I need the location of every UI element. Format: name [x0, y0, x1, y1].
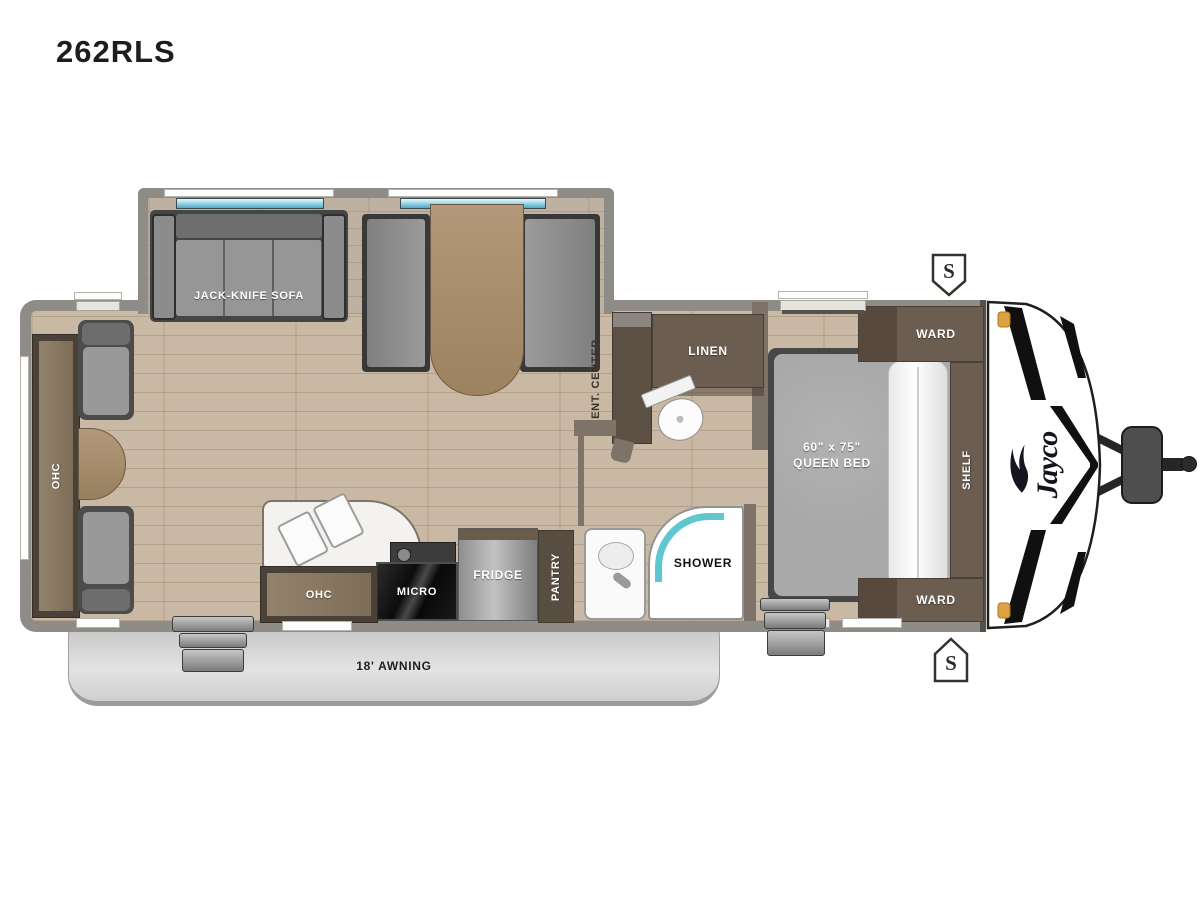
- wardrobe-bottom: WARD: [858, 578, 984, 622]
- main-step-3: [182, 649, 244, 672]
- vanity-sink: [598, 542, 634, 570]
- main-step-2: [179, 633, 247, 648]
- wall-bath-lower: [744, 504, 756, 621]
- vanity-faucet: [611, 571, 632, 590]
- linen-label: LINEN: [688, 344, 728, 358]
- wardrobe-bottom-end: [859, 579, 897, 621]
- microwave-label: MICRO: [397, 586, 437, 598]
- linen-cabinet: LINEN: [652, 314, 764, 388]
- pantry-label: PANTRY: [550, 552, 562, 600]
- shower-label: SHOWER: [674, 556, 732, 570]
- speaker-top-label: S: [943, 259, 955, 283]
- marker-light-bottom: [998, 603, 1010, 618]
- chair-bottom-back: [82, 589, 130, 611]
- chair-bottom: [78, 506, 134, 614]
- wall-hall-thin: [578, 436, 584, 526]
- wardrobe-bottom-label: WARD: [916, 593, 955, 607]
- chair-top-back: [82, 323, 130, 345]
- bedroom-step-1: [760, 598, 830, 611]
- speaker-bottom-label: S: [945, 651, 957, 675]
- dinette-bench-left: [362, 214, 430, 372]
- bed-type-label: QUEEN BED: [776, 456, 888, 472]
- shelf: SHELF: [950, 362, 984, 578]
- bedroom-step-3: [767, 630, 825, 656]
- dinette-bench-left-cushion: [367, 219, 425, 367]
- window-bottom-kitchen: [282, 621, 352, 631]
- window-bottom-bedroom: [842, 618, 902, 628]
- rear-ohc-label: OHC: [50, 463, 62, 490]
- speaker-bottom-icon: S: [932, 636, 970, 684]
- rear-ohc-cabinet: OHC: [32, 334, 80, 618]
- wardrobe-top: WARD: [858, 306, 984, 362]
- pillow-fold-line: [917, 367, 919, 585]
- sofa-backrest: [176, 214, 322, 238]
- bed-pillow: [888, 360, 948, 590]
- sofa-armrest-left: [152, 214, 176, 320]
- brand-logo: Jayco: [984, 395, 1088, 535]
- window-bottom-rear: [76, 618, 120, 628]
- chair-top-cushion: [83, 347, 129, 415]
- main-step-1: [172, 616, 254, 632]
- rear-ohc-labelwrap: OHC: [33, 335, 79, 617]
- bedroom-step-2: [764, 612, 826, 629]
- bed-label: 60" x 75" QUEEN BED: [776, 440, 888, 471]
- dinette-table: [430, 204, 524, 396]
- rear-window: [20, 356, 29, 560]
- ent-center-label: ENT. CENTER: [590, 339, 602, 419]
- brand-logo-text: Jayco: [1031, 432, 1065, 499]
- hitch-coupler: [1182, 457, 1197, 472]
- chair-top: [78, 320, 134, 420]
- kitchen-ohc-label: OHC: [306, 589, 333, 601]
- microwave: MICRO: [376, 562, 458, 621]
- wall-ent-return: [574, 420, 616, 436]
- slideout-window-frame-right: [388, 189, 558, 197]
- awning-label: 18' AWNING: [356, 659, 431, 673]
- pantry: PANTRY: [538, 530, 574, 623]
- chair-bottom-cushion: [83, 512, 129, 584]
- slideout-window-frame-left: [164, 189, 334, 197]
- stove-dial: [397, 548, 411, 562]
- bed-size-label: 60" x 75": [776, 440, 888, 456]
- slideout-window-left: [176, 198, 324, 209]
- sofa-armrest-right: [322, 214, 346, 320]
- page-title: 262RLS: [56, 34, 176, 70]
- marker-light-top: [998, 312, 1010, 327]
- shelf-label: SHELF: [961, 450, 973, 490]
- fridge: FRIDGE: [458, 528, 538, 621]
- sofa-seat: [176, 240, 322, 316]
- ent-center-cabinet: [612, 312, 652, 444]
- jack-knife-sofa: JACK-KNIFE SOFA: [150, 210, 348, 322]
- awning: 18' AWNING: [68, 630, 720, 706]
- propane-cover: [1122, 427, 1162, 503]
- fridge-label: FRIDGE: [473, 568, 523, 582]
- wardrobe-top-end: [859, 307, 897, 361]
- wardrobe-top-label: WARD: [916, 327, 955, 341]
- toilet-drain: [675, 415, 684, 424]
- kitchen-ohc-cabinet: OHC: [260, 566, 378, 623]
- window-bedroom-valance: [782, 310, 864, 314]
- bath-vanity: [584, 528, 646, 620]
- floorplan-page: 262RLS 18' AWNING JACK-KNIFE SOFA OHC: [0, 0, 1200, 900]
- window-bedroom-top-frame: [778, 291, 868, 299]
- sofa-label: JACK-KNIFE SOFA: [150, 290, 348, 302]
- speaker-top-icon: S: [930, 252, 968, 298]
- ent-center-top: [613, 313, 651, 327]
- jayco-bird-icon: [1007, 433, 1031, 497]
- window-topleft: [76, 301, 120, 311]
- window-topleft-frame: [74, 292, 122, 300]
